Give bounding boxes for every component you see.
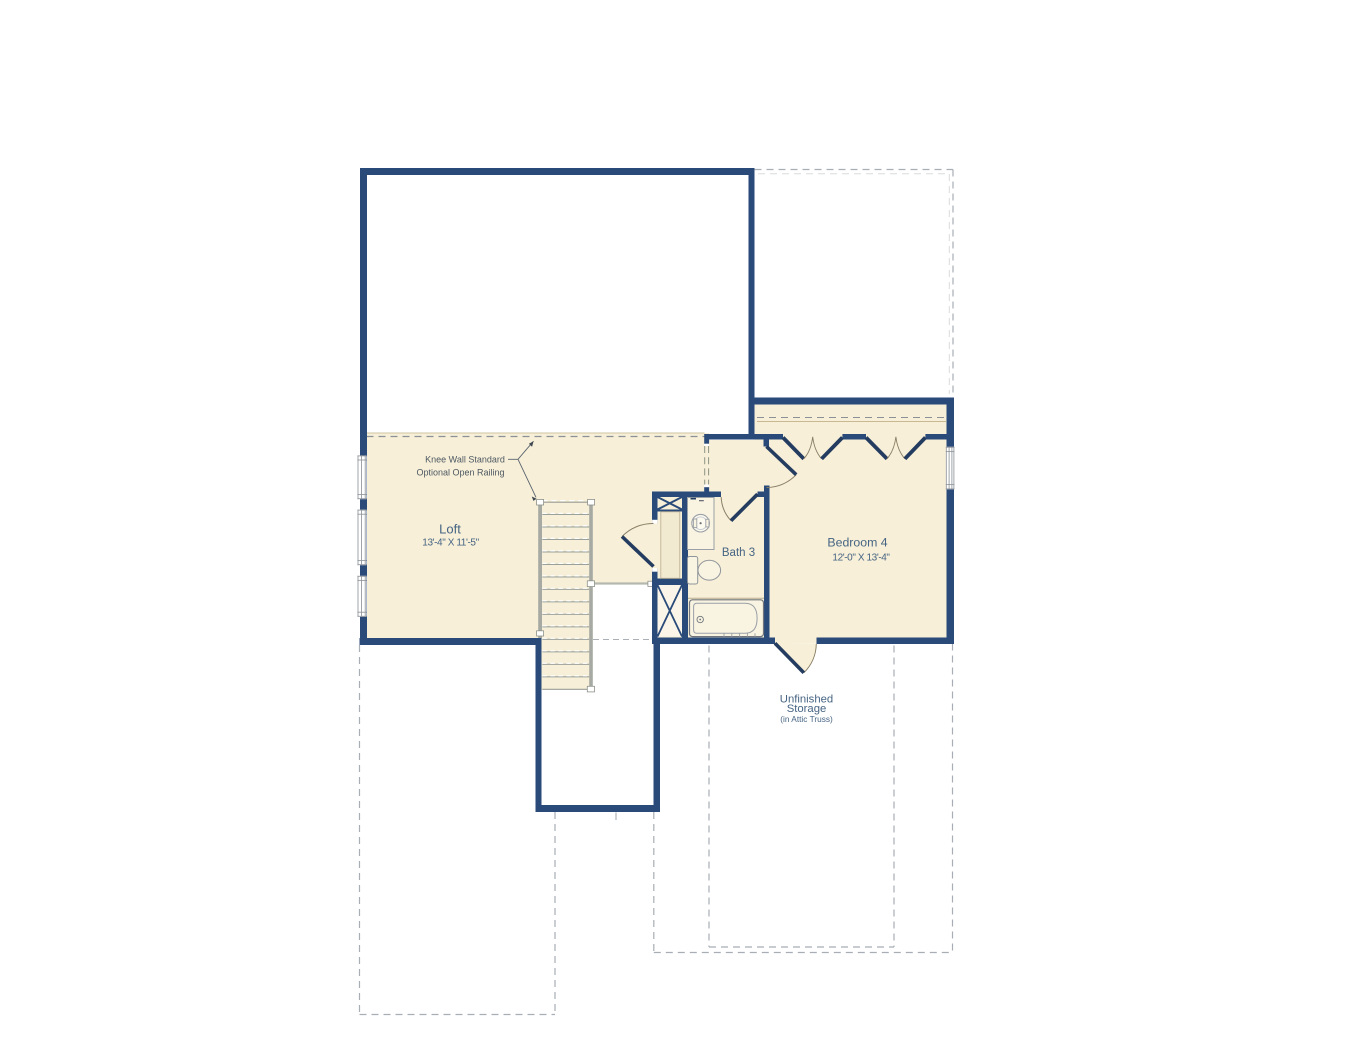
svg-text:Optional Open Railing: Optional Open Railing (416, 468, 504, 478)
svg-text:(in Attic Truss): (in Attic Truss) (780, 714, 833, 724)
svg-text:Bedroom 4: Bedroom 4 (827, 536, 887, 550)
svg-text:12'-0" X 13'-4": 12'-0" X 13'-4" (832, 553, 890, 564)
svg-text:Knee Wall Standard: Knee Wall Standard (425, 455, 505, 465)
svg-text:Bath 3: Bath 3 (722, 547, 755, 559)
svg-text:Loft: Loft (439, 522, 461, 537)
svg-text:13'-4" X 11'-5": 13'-4" X 11'-5" (422, 537, 479, 548)
